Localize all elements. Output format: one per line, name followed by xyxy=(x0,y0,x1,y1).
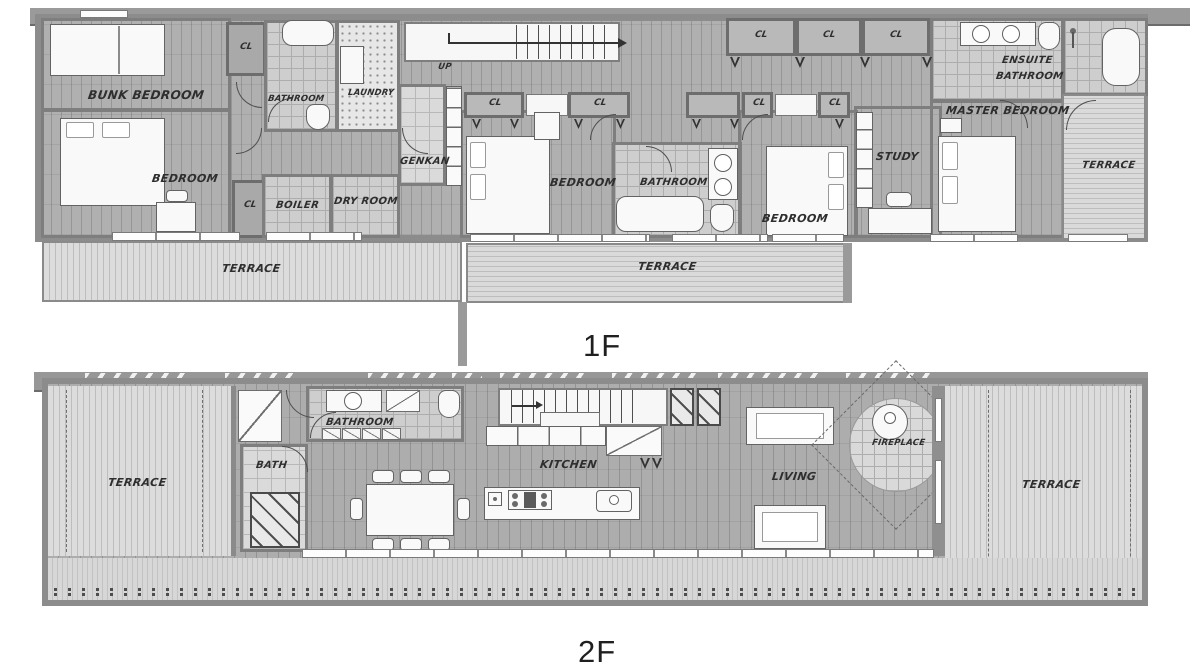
cabinet-row-b xyxy=(686,92,740,118)
chair xyxy=(886,192,912,207)
label-terrace-east-2f: TERRACE xyxy=(1021,478,1081,491)
railing xyxy=(54,588,1136,591)
floor-1-tag: 1F xyxy=(583,328,621,364)
label-closet: CL xyxy=(822,30,836,40)
label-closet: CL xyxy=(889,30,903,40)
label-bedroom-west: BEDROOM xyxy=(151,172,219,185)
kitchen-tall-cabinet xyxy=(606,426,662,456)
stair-arrow-head-2f xyxy=(536,401,543,409)
burner xyxy=(541,501,547,507)
label-closet: CL xyxy=(239,42,253,52)
oven xyxy=(524,492,536,508)
bath-shower-glass xyxy=(250,492,300,548)
label-bathroom-2f: BATHROOM xyxy=(325,417,394,428)
vanity-cabinet xyxy=(362,428,381,440)
pillow xyxy=(942,176,958,204)
vanity-cabinet xyxy=(382,428,401,440)
shower-arm xyxy=(1072,32,1074,48)
terrace-post xyxy=(458,302,467,366)
stove-flue xyxy=(884,412,896,424)
label-closet: CL xyxy=(754,30,768,40)
toilet-west xyxy=(306,104,330,130)
stair-glass-panel xyxy=(697,388,721,426)
study-desk xyxy=(868,208,932,234)
stair-arrow-head xyxy=(618,38,627,48)
window xyxy=(935,460,942,524)
closet-2f xyxy=(238,390,282,442)
window xyxy=(80,10,128,18)
window xyxy=(112,232,240,241)
toilet-2f xyxy=(438,390,460,418)
sink xyxy=(714,154,732,172)
desk-west xyxy=(156,202,196,232)
stair-arrow-start xyxy=(448,33,450,44)
pillow xyxy=(66,122,94,138)
floor-2-tag: 2F xyxy=(578,634,616,669)
chair xyxy=(372,470,394,483)
label-bunk-bedroom: BUNK BEDROOM xyxy=(87,88,205,102)
dining-table xyxy=(366,484,454,536)
window xyxy=(772,234,844,242)
washer-drum xyxy=(344,392,362,410)
sofa-cushion xyxy=(756,413,824,439)
label-bathroom-west: BATHROOM xyxy=(267,94,325,104)
chair xyxy=(428,470,450,483)
terrace-joint-line xyxy=(202,390,203,552)
window xyxy=(672,234,768,242)
label-living: LIVING xyxy=(771,470,817,483)
nightstand xyxy=(940,118,962,133)
vanity-cabinet xyxy=(342,428,361,440)
pillow xyxy=(102,122,130,138)
stair-glass-panel xyxy=(670,388,694,426)
side-desk-center xyxy=(534,112,560,140)
chair xyxy=(400,470,422,483)
label-laundry: LAUNDRY xyxy=(347,88,394,98)
label-fireplace: FIREPLACE xyxy=(871,438,926,448)
label-ensuite-line2: BATHROOM xyxy=(995,71,1064,82)
label-genkan: GENKAN xyxy=(399,156,450,167)
washing-machine xyxy=(340,46,364,84)
island-switch-knob xyxy=(493,497,497,501)
terrace-joint-line xyxy=(66,390,67,552)
terrace-post xyxy=(843,243,852,303)
label-up: UP xyxy=(437,62,452,72)
pillow xyxy=(828,184,844,210)
terrace-west-2f xyxy=(48,386,236,556)
toilet-center xyxy=(710,204,734,232)
floor-plan: BUNK BEDROOM BEDROOM BATHROOM LAUNDRY UP… xyxy=(0,0,1200,669)
label-study: STUDY xyxy=(875,150,919,163)
pillow xyxy=(470,142,486,168)
label-closet: CL xyxy=(488,98,502,108)
window xyxy=(935,398,942,442)
label-closet: CL xyxy=(243,200,257,210)
label-master-bedroom: MASTER BEDROOM xyxy=(945,104,1070,117)
sink xyxy=(972,25,990,43)
chair xyxy=(457,498,470,520)
label-bath: BATH xyxy=(255,460,288,471)
sofa-cushion xyxy=(762,512,818,542)
window xyxy=(470,234,650,242)
sink xyxy=(1002,25,1020,43)
chair xyxy=(166,190,188,202)
pillow xyxy=(828,152,844,178)
label-closet: CL xyxy=(828,98,842,108)
label-terrace-south: TERRACE xyxy=(637,260,697,273)
south-glazing xyxy=(302,549,934,558)
label-terrace-west-2f: TERRACE xyxy=(107,476,167,489)
kitchen-wall-cabinets xyxy=(486,426,606,446)
bunk-bed xyxy=(50,24,165,76)
genkan-cabinet xyxy=(446,86,462,186)
label-closet: CL xyxy=(752,98,766,108)
chair xyxy=(350,498,363,520)
window xyxy=(1068,234,1128,242)
stair-arrow-1f xyxy=(448,42,620,44)
burner xyxy=(512,493,518,499)
burner xyxy=(541,493,547,499)
label-closet: CL xyxy=(593,98,607,108)
label-bedroom-center: BEDROOM xyxy=(549,176,617,189)
window xyxy=(930,234,1018,242)
study-shelf xyxy=(856,112,873,208)
bathroom-counter xyxy=(386,390,420,412)
window xyxy=(266,232,362,241)
label-kitchen: KITCHEN xyxy=(539,458,598,471)
stair-arrow-2f xyxy=(512,405,538,407)
terrace-south-1f xyxy=(466,243,852,303)
bunk-bed-divider xyxy=(118,26,120,74)
label-dry-room: DRY ROOM xyxy=(333,196,398,207)
wet-room-bathtub xyxy=(1102,28,1140,86)
bathtub-west xyxy=(282,20,334,46)
label-terrace-east-1f: TERRACE xyxy=(1081,160,1136,171)
pillow xyxy=(942,142,958,170)
label-boiler: BOILER xyxy=(275,200,320,211)
label-terrace-southwest: TERRACE xyxy=(221,262,281,275)
faucet xyxy=(609,495,619,505)
sink xyxy=(714,178,732,196)
railing xyxy=(54,593,1136,596)
label-bathroom-center: BATHROOM xyxy=(639,177,708,188)
burner xyxy=(512,501,518,507)
label-ensuite-line1: ENSUITE xyxy=(1001,55,1053,66)
pillow xyxy=(470,174,486,200)
bathtub-center xyxy=(616,196,704,232)
label-bedroom-east: BEDROOM xyxy=(761,212,829,225)
ensuite-toilet xyxy=(1038,22,1060,50)
closet-row-gap2 xyxy=(775,94,817,116)
